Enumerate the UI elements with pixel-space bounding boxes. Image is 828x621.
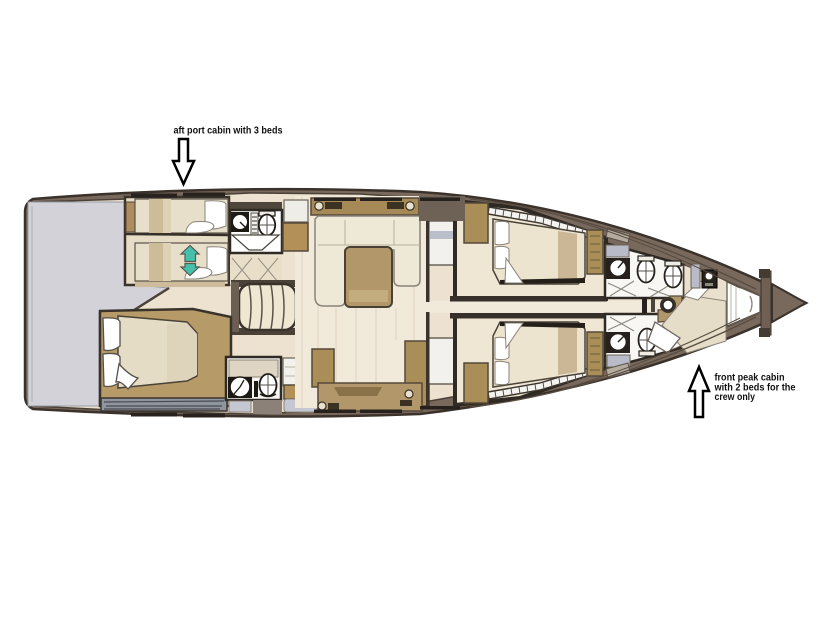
svg-text:crew only: crew only (715, 391, 756, 403)
svg-text:aft port cabin with 3 beds: aft port cabin with 3 beds (174, 125, 283, 137)
